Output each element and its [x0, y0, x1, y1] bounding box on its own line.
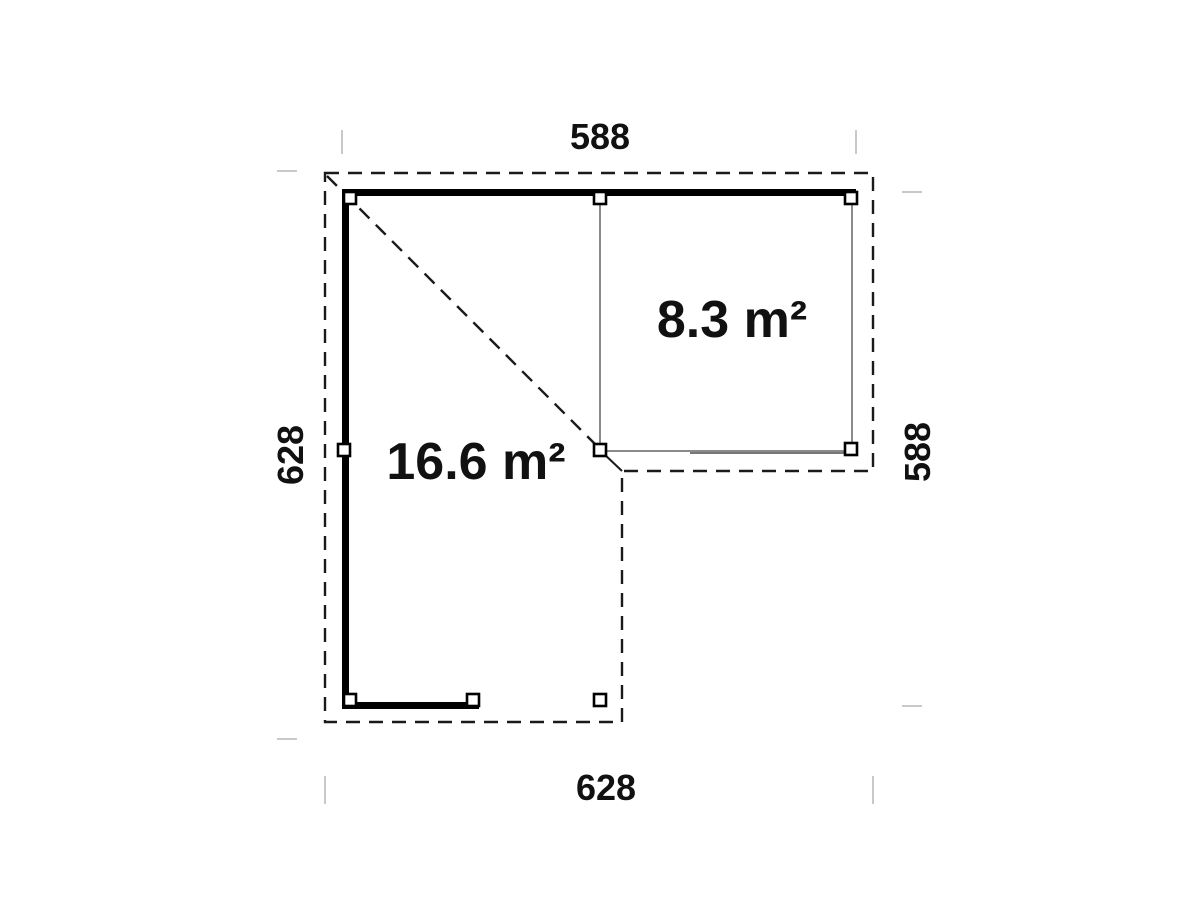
dimension-top: 588 [570, 116, 630, 157]
area-label-open-area: 16.6 m² [386, 433, 565, 491]
dimension-bottom: 628 [576, 767, 636, 808]
dimension-right: 588 [897, 422, 938, 482]
post-marker [594, 192, 606, 204]
post-marker [845, 192, 857, 204]
post-marker [467, 694, 479, 706]
area-label-enclosed-room: 8.3 m² [657, 291, 807, 349]
post-marker [845, 443, 857, 455]
diagonal-dashed-line [327, 176, 597, 446]
floor-plan-page: 588 628 628 588 8.3 m² 16.6 m² [0, 0, 1200, 900]
post-marker [344, 694, 356, 706]
post-marker [344, 192, 356, 204]
post-marker [594, 694, 606, 706]
dimension-left: 628 [270, 425, 311, 485]
floor-plan-canvas: 588 628 628 588 8.3 m² 16.6 m² [0, 0, 1200, 900]
post-marker [338, 444, 350, 456]
post-marker [594, 444, 606, 456]
